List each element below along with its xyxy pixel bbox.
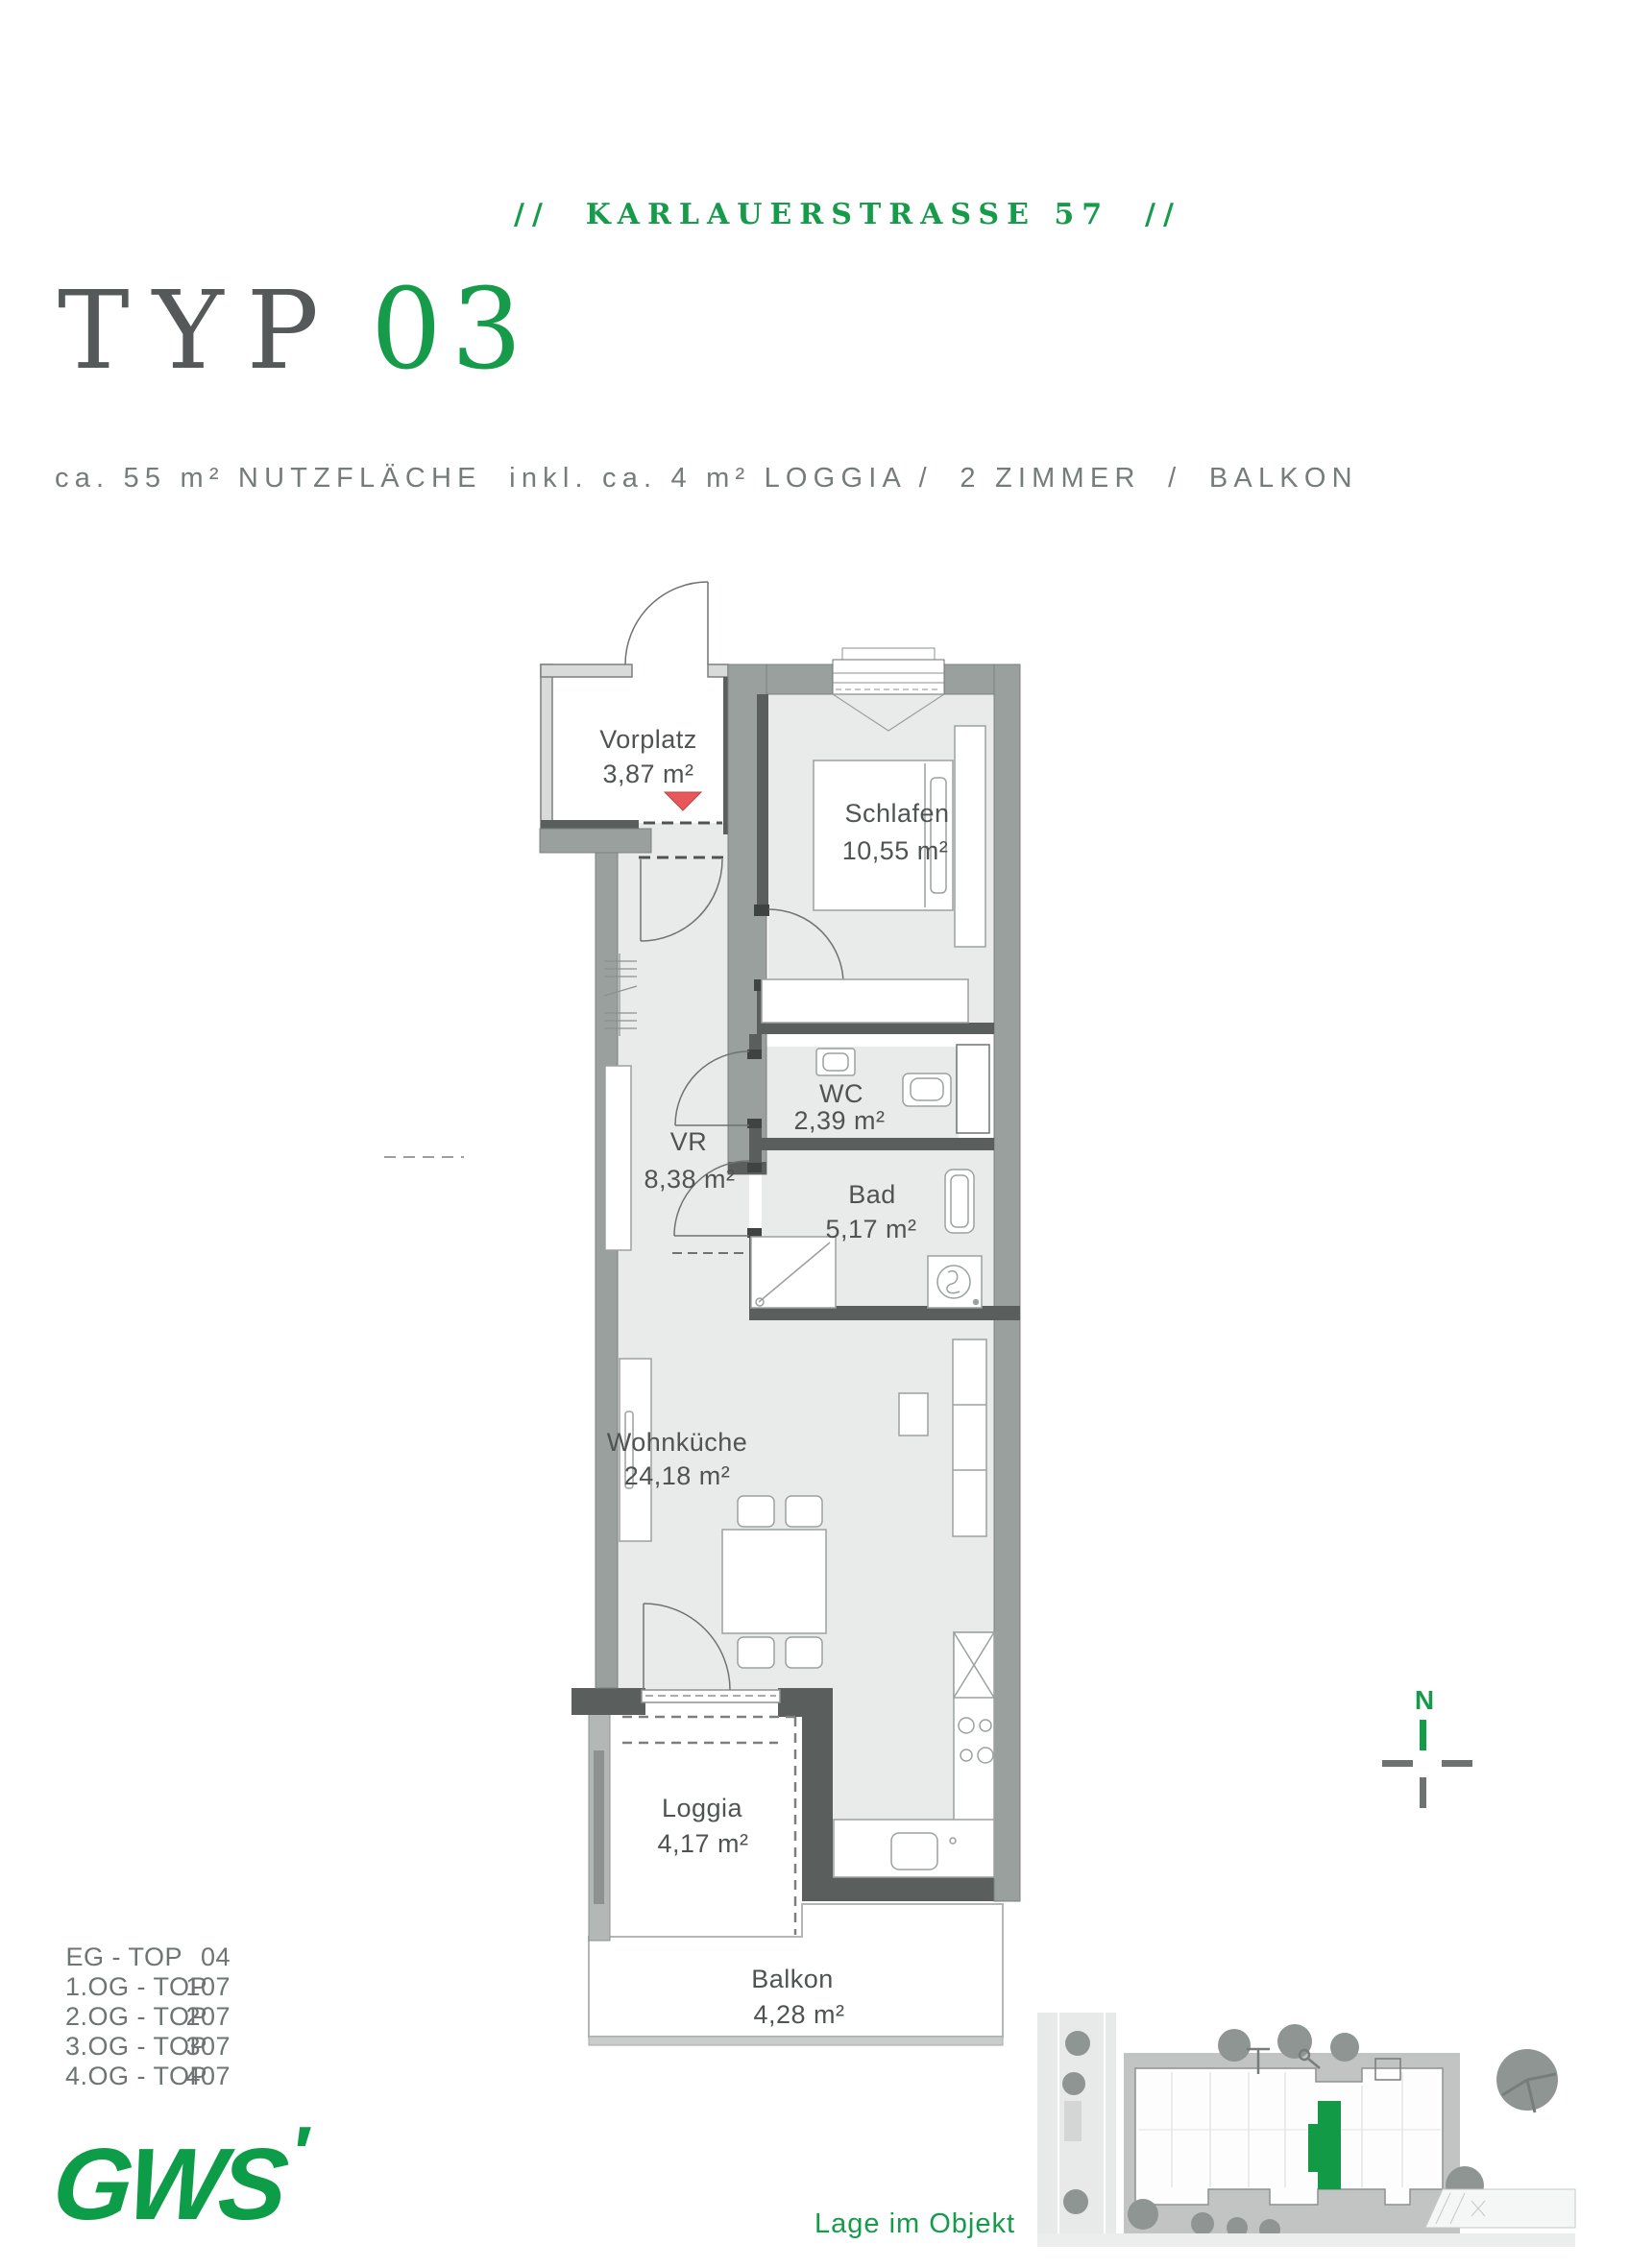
unit-number: 207 bbox=[182, 2002, 231, 2032]
coffee-table-icon bbox=[899, 1393, 928, 1436]
room-area-vorplatz: 3,87 m² bbox=[602, 760, 693, 788]
unit-row: 2.OG - TOP 207 bbox=[65, 2002, 231, 2032]
room-label-vr: VR bbox=[670, 1127, 708, 1156]
floorplan-sheet: // KARLAUERSTRASSE 57 // TYP03 ca. 55 m²… bbox=[0, 0, 1629, 2268]
unit-number: 04 bbox=[182, 1942, 231, 1972]
toilet-icon bbox=[816, 1049, 855, 1075]
site-plan bbox=[1028, 2005, 1580, 2258]
floor-plan-drawing: Vorplatz 3,87 m² Schlafen 10,55 m² VR 8,… bbox=[365, 543, 1047, 2098]
unit-row: 3.OG - TOP 307 bbox=[65, 2032, 231, 2062]
room-label-loggia: Loggia bbox=[662, 1794, 743, 1822]
north-compass: N bbox=[1376, 1683, 1480, 1814]
north-label: N bbox=[1415, 1685, 1434, 1715]
room-area-bad: 5,17 m² bbox=[825, 1215, 916, 1243]
entrance-marker bbox=[665, 792, 701, 810]
room-label-balkon: Balkon bbox=[751, 1965, 834, 1993]
unit-row: 1.OG - TOP 107 bbox=[65, 1972, 231, 2002]
unit-floor: 4.OG - TOP bbox=[65, 2062, 182, 2091]
unit-row: 4.OG - TOP 407 bbox=[65, 2062, 231, 2091]
sofa-icon bbox=[953, 1339, 986, 1536]
dining-set-icon bbox=[722, 1496, 826, 1668]
unit-number: 107 bbox=[182, 1972, 231, 2002]
unit-list: EG - TOP 04 1.OG - TOP 107 2.OG - TOP 20… bbox=[65, 1942, 231, 2091]
room-area-schlafen: 10,55 m² bbox=[842, 836, 949, 865]
north-pointer bbox=[1420, 1720, 1426, 1750]
vr-cabinet-icon bbox=[605, 1066, 631, 1250]
unit-row: EG - TOP 04 bbox=[65, 1942, 231, 1972]
unit-floor: 3.OG - TOP bbox=[65, 2032, 182, 2062]
gws-logo-prime-mark: ′ bbox=[290, 2111, 308, 2195]
room-label-wc: WC bbox=[819, 1079, 863, 1108]
compass-cross bbox=[1382, 1760, 1472, 1808]
floor-plan: Vorplatz 3,87 m² Schlafen 10,55 m² VR 8,… bbox=[365, 543, 1047, 2098]
room-area-wohnkueche: 24,18 m² bbox=[624, 1461, 731, 1490]
type-number: 03 bbox=[371, 265, 532, 395]
unit-number: 407 bbox=[182, 2062, 231, 2091]
room-label-bad: Bad bbox=[848, 1180, 896, 1209]
bed-icon bbox=[814, 760, 953, 910]
page-title: TYP03 bbox=[58, 277, 532, 385]
shower-icon bbox=[751, 1237, 836, 1308]
site-road-bottom bbox=[1037, 2233, 1575, 2247]
type-prefix: TYP bbox=[58, 269, 342, 394]
site-building bbox=[1135, 2068, 1443, 2205]
apartment-summary: ca. 55 m² NUTZFLÄCHE inkl. ca. 4 m² LOGG… bbox=[55, 463, 1358, 495]
unit-floor: EG - TOP bbox=[65, 1942, 182, 1972]
washing-machine-icon bbox=[928, 1256, 982, 1308]
radiator-icon bbox=[945, 1170, 974, 1233]
room-area-balkon: 4,28 m² bbox=[753, 2000, 844, 2029]
unit-number: 307 bbox=[182, 2032, 231, 2062]
unit-floor: 2.OG - TOP bbox=[65, 2002, 182, 2032]
gws-logo-text: GWS bbox=[48, 2134, 287, 2235]
sideboard-icon bbox=[762, 979, 968, 1023]
wc-sink-icon bbox=[903, 1074, 951, 1106]
room-label-wohnkueche: Wohnküche bbox=[607, 1428, 748, 1457]
gws-logo: GWS′ bbox=[54, 2134, 301, 2237]
room-label-schlafen: Schlafen bbox=[844, 799, 949, 828]
room-area-loggia: 4,17 m² bbox=[657, 1829, 748, 1858]
site-driveway bbox=[1425, 2189, 1575, 2228]
wardrobe-icon bbox=[955, 726, 985, 947]
room-area-vr: 8,38 m² bbox=[644, 1165, 735, 1194]
room-area-wc: 2,39 m² bbox=[793, 1106, 885, 1135]
entrance-door bbox=[625, 582, 708, 664]
unit-floor: 1.OG - TOP bbox=[65, 1972, 182, 2002]
site-plan-caption: Lage im Objekt bbox=[814, 2208, 1015, 2240]
room-label-vorplatz: Vorplatz bbox=[599, 725, 697, 754]
project-name: // KARLAUERSTRASSE 57 // bbox=[514, 198, 1181, 231]
